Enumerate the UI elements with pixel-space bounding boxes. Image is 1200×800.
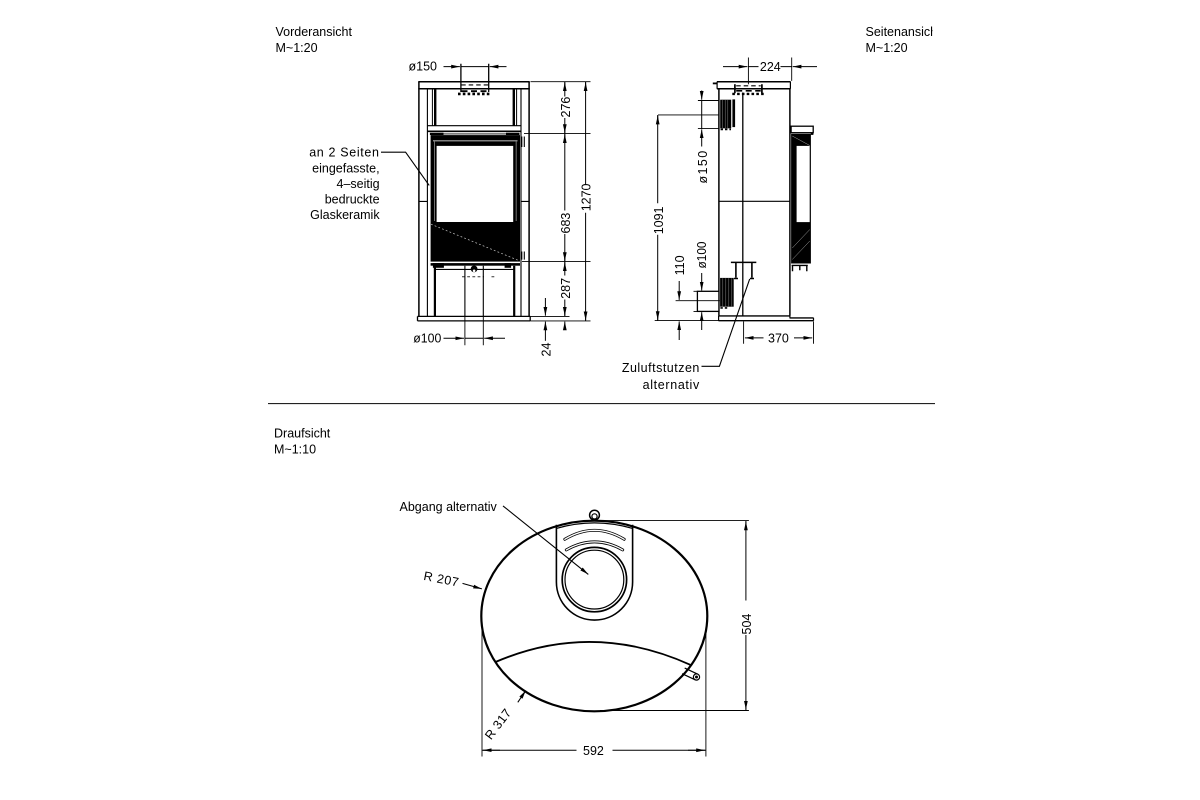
svg-text:ø100: ø100 [695,241,709,268]
svg-text:ø150: ø150 [696,149,710,183]
svg-text:Draufsicht: Draufsicht [274,427,331,441]
svg-text:Abgang alternativ: Abgang alternativ [400,500,498,514]
svg-text:504: 504 [740,614,754,635]
svg-text:eingefasste,: eingefasste, [312,161,379,175]
svg-text:287: 287 [559,278,573,299]
svg-text:an 2 Seiten: an 2 Seiten [309,146,379,160]
svg-text:M~1:10: M~1:10 [274,443,316,457]
svg-text:24: 24 [539,343,553,357]
svg-text:Zuluftstutzen: Zuluftstutzen [622,361,700,375]
svg-text:ø150: ø150 [409,60,438,74]
svg-text:Seitenansicht: Seitenansicht [866,25,942,39]
svg-text:Glaskeramik: Glaskeramik [310,208,380,222]
svg-text:ø100: ø100 [413,332,441,346]
svg-text:1091: 1091 [652,206,666,234]
svg-text:110: 110 [673,255,687,275]
svg-text:276: 276 [559,97,573,118]
svg-text:592: 592 [583,744,604,758]
svg-text:Vorderansicht: Vorderansicht [276,25,353,39]
svg-text:224: 224 [760,60,781,74]
svg-text:370: 370 [768,331,789,345]
svg-text:bedruckte: bedruckte [325,193,380,207]
svg-text:683: 683 [559,213,573,234]
svg-text:M~1:20: M~1:20 [276,41,318,55]
svg-text:M~1:20: M~1:20 [866,41,908,55]
svg-text:4–seitig: 4–seitig [337,177,380,191]
svg-text:alternativ: alternativ [643,378,700,392]
svg-text:1270: 1270 [580,183,594,211]
